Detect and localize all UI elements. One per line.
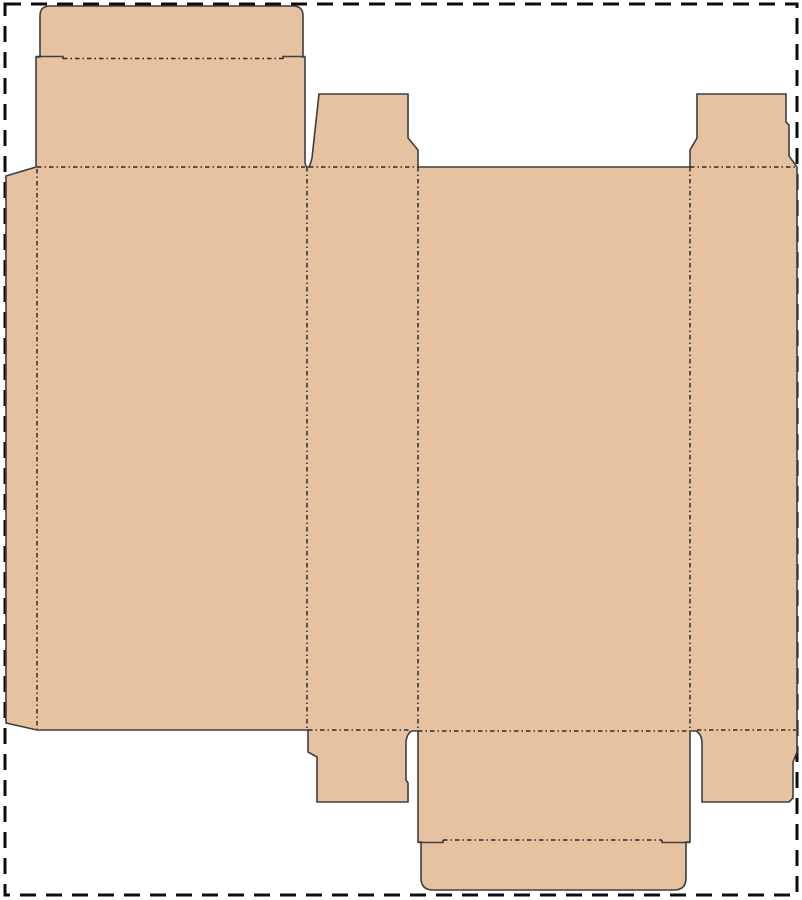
dieline-canvas: [0, 0, 802, 900]
dieline-page: [0, 0, 802, 900]
carton-blank-outline: [6, 6, 797, 890]
